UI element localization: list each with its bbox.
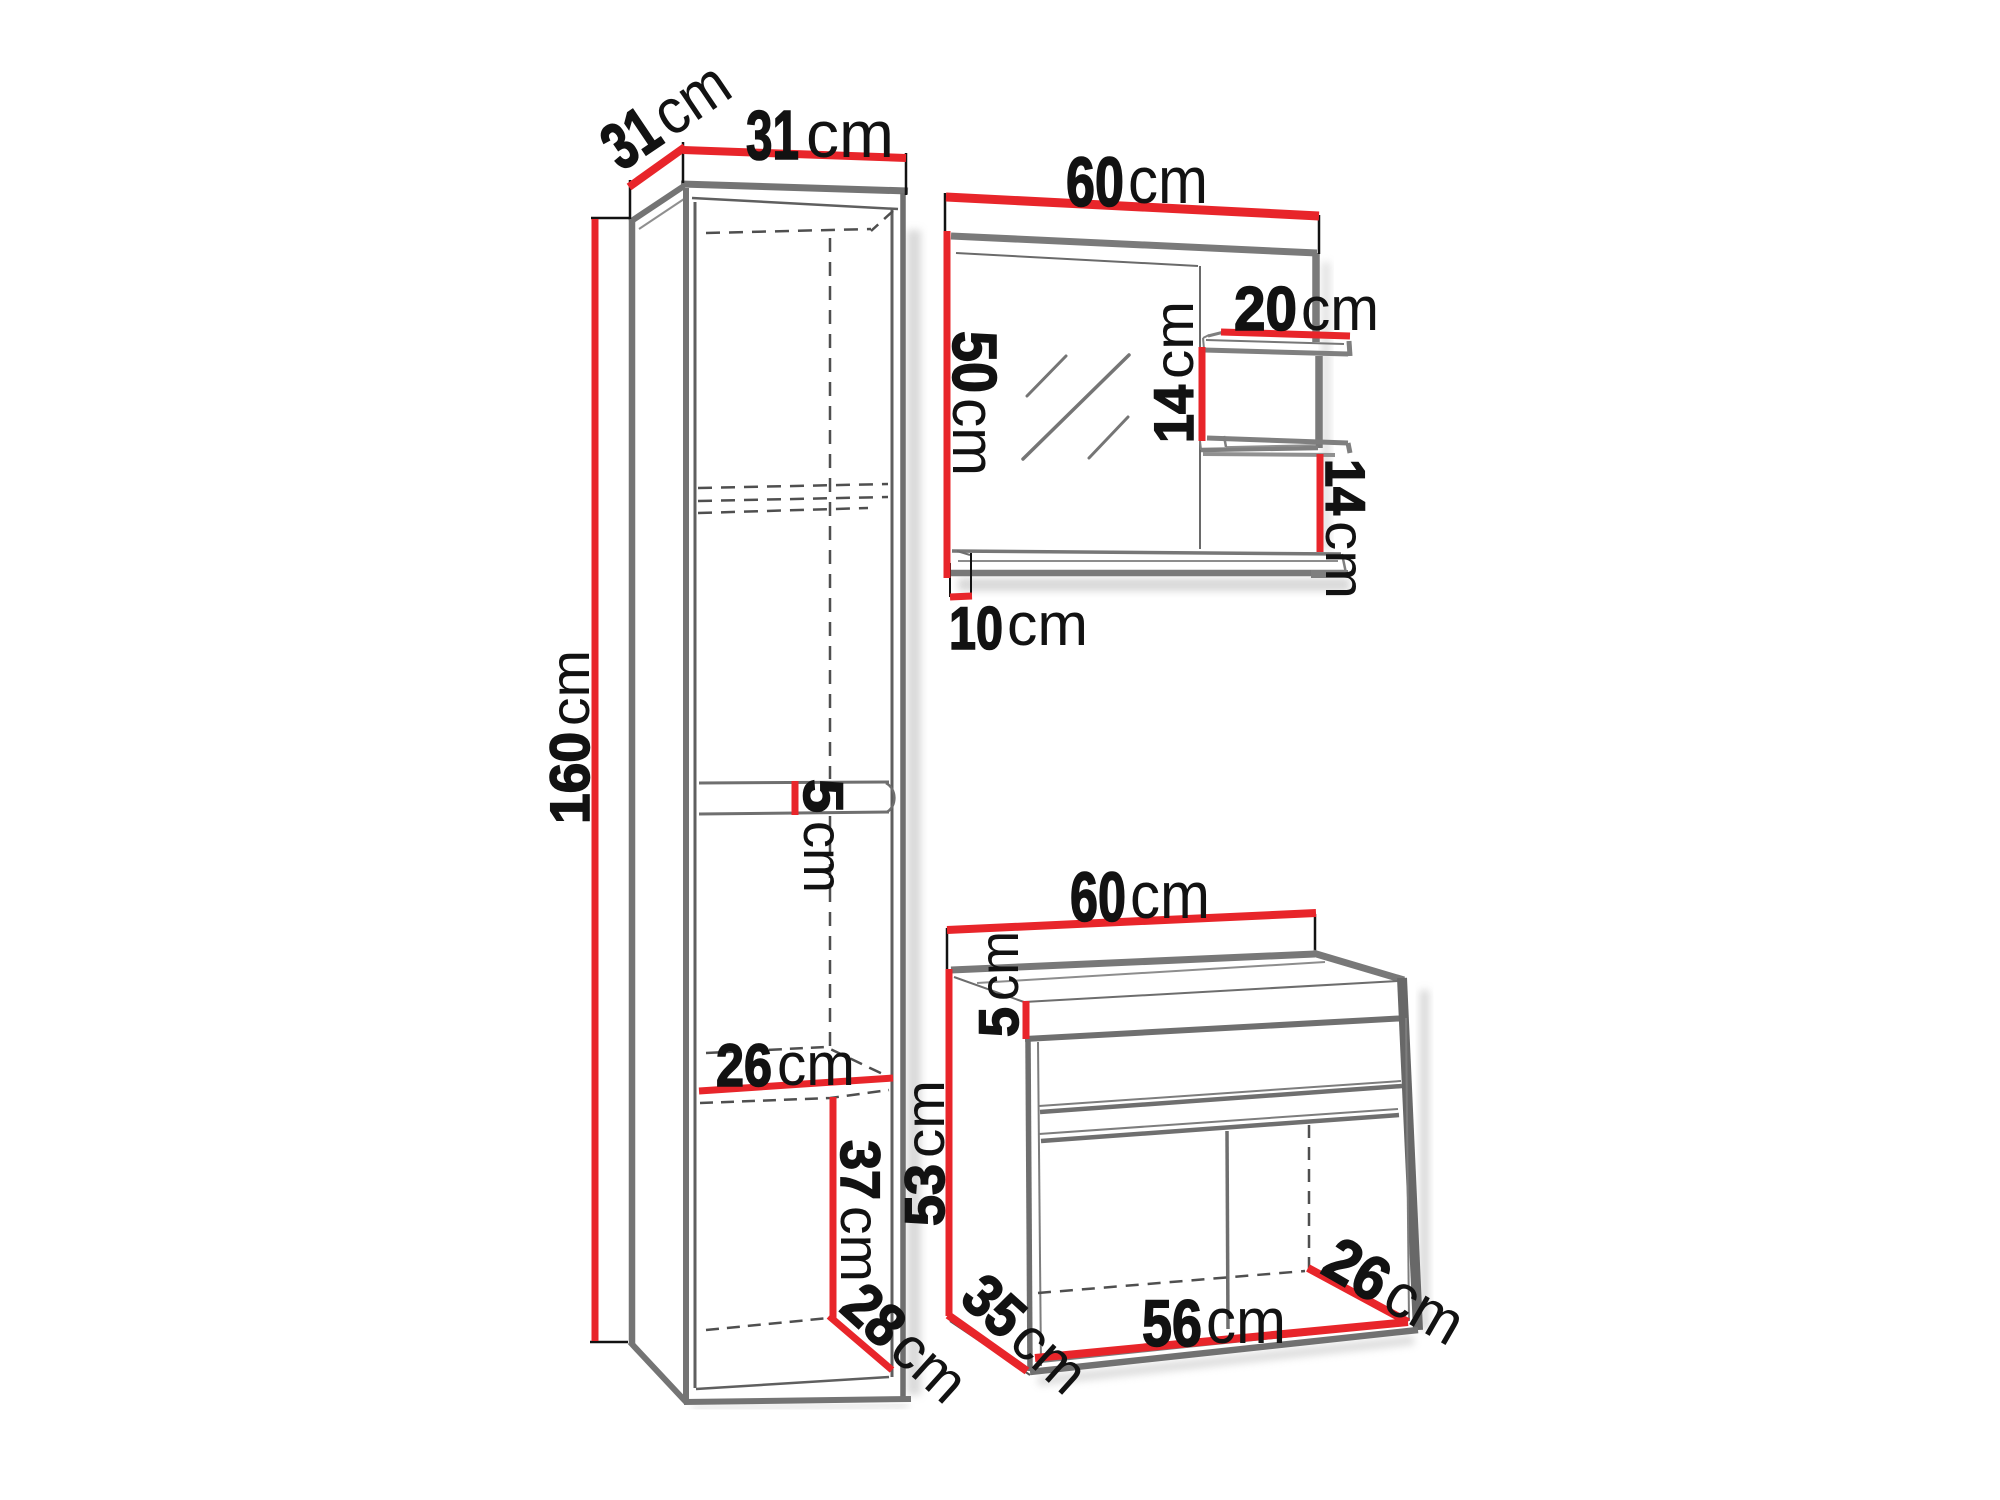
svg-text:cm: cm — [1130, 858, 1210, 932]
svg-text:50: 50 — [939, 331, 1008, 393]
svg-text:14: 14 — [1142, 385, 1205, 443]
svg-text:cm: cm — [777, 1031, 855, 1098]
svg-text:cm: cm — [1301, 275, 1379, 344]
svg-text:56: 56 — [1142, 1286, 1202, 1360]
svg-text:cm: cm — [538, 650, 601, 726]
svg-text:5: 5 — [792, 779, 855, 813]
svg-text:5: 5 — [967, 1007, 1030, 1037]
svg-text:160: 160 — [538, 732, 601, 824]
svg-text:cm: cm — [940, 398, 1007, 476]
svg-text:14: 14 — [1314, 459, 1377, 515]
svg-text:26: 26 — [716, 1032, 772, 1099]
svg-text:20: 20 — [1234, 275, 1297, 344]
svg-text:10: 10 — [949, 595, 1003, 662]
svg-text:cm: cm — [1007, 591, 1088, 658]
svg-text:cm: cm — [806, 97, 894, 171]
svg-text:cm: cm — [893, 1080, 956, 1158]
svg-text:cm: cm — [1128, 143, 1208, 217]
svg-text:cm: cm — [1314, 521, 1377, 599]
svg-text:cm: cm — [1206, 1285, 1286, 1357]
svg-text:37: 37 — [829, 1140, 892, 1200]
svg-text:60: 60 — [1066, 143, 1124, 221]
svg-text:cm: cm — [829, 1206, 892, 1282]
svg-text:cm: cm — [1142, 301, 1205, 379]
svg-text:60: 60 — [1070, 858, 1126, 936]
svg-text:53: 53 — [893, 1164, 956, 1226]
svg-text:cm: cm — [792, 821, 855, 893]
svg-text:31: 31 — [746, 96, 799, 174]
svg-text:cm: cm — [967, 931, 1030, 1001]
